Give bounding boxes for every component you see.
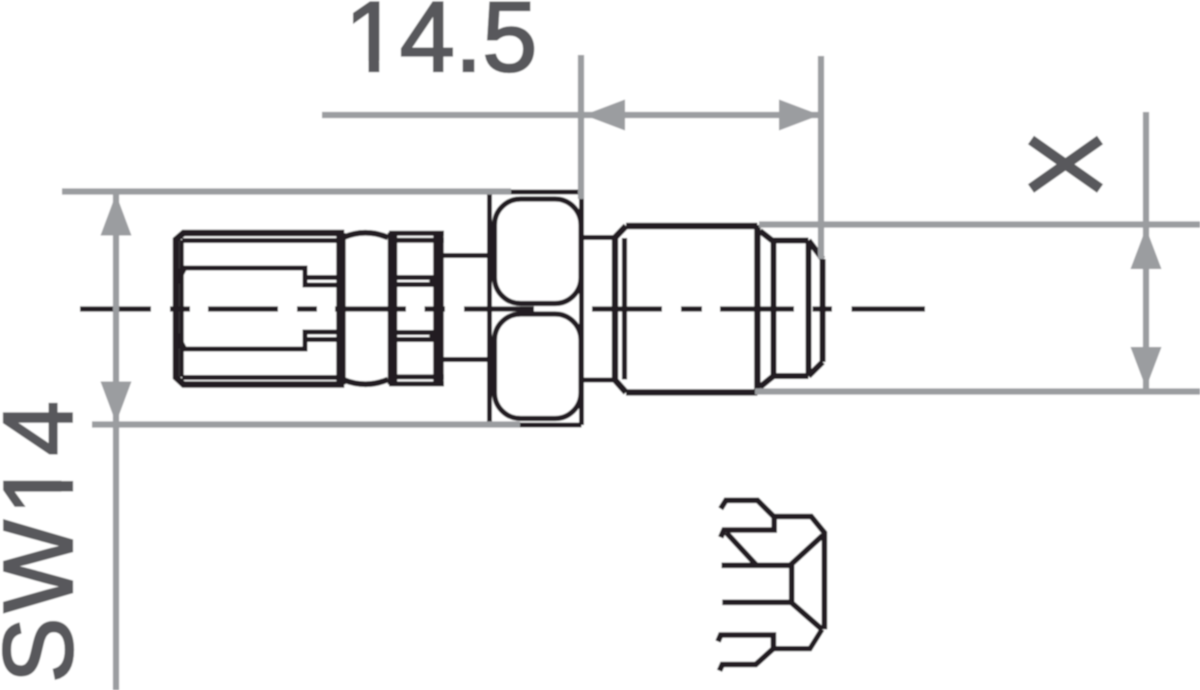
svg-text:SW14: SW14 — [0, 396, 93, 683]
svg-text:14.5: 14.5 — [345, 0, 538, 92]
